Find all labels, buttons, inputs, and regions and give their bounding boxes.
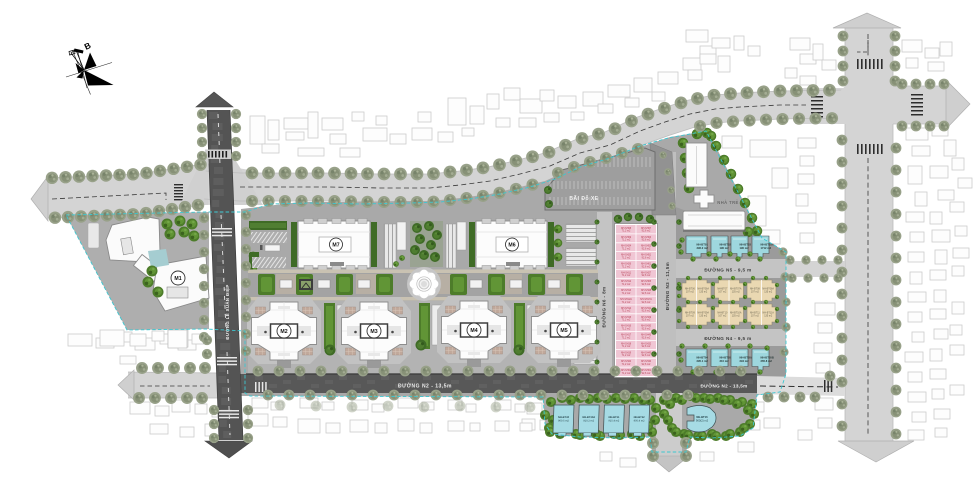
svg-text:M3: M3 [370,329,377,335]
svg-text:71,2 m2: 71,2 m2 [622,274,631,277]
svg-text:915.4 m2: 915.4 m2 [608,418,620,422]
svg-text:71,2 m2: 71,2 m2 [622,310,631,313]
svg-text:71,2 m2: 71,2 m2 [622,283,631,286]
svg-text:71,2 m2: 71,2 m2 [622,319,631,322]
svg-text:92,6 m2: 92,6 m2 [642,230,651,233]
svg-text:71,2 m2: 71,2 m2 [622,239,631,242]
svg-text:M5: M5 [560,328,567,334]
svg-text:ĐƯỜNG N4 - 9,5 m: ĐƯỜNG N4 - 9,5 m [704,334,751,341]
svg-text:71,2 m2: 71,2 m2 [622,301,631,304]
svg-text:BÃI Đỗ XE: BÃI Đỗ XE [569,195,598,202]
svg-text:190 m2: 190 m2 [740,246,750,250]
svg-text:92,6 m2: 92,6 m2 [642,363,651,366]
svg-text:71,2 m2: 71,2 m2 [622,256,631,259]
svg-text:71,2 m2: 71,2 m2 [622,292,631,295]
svg-text:M4: M4 [470,328,477,334]
svg-text:71,2 m2: 71,2 m2 [622,248,631,251]
svg-text:92,6 m2: 92,6 m2 [642,319,651,322]
svg-text:NH-BT31: NH-BT31 [608,415,620,419]
svg-text:92,6 m2: 92,6 m2 [642,301,651,304]
svg-text:71,2 m2: 71,2 m2 [622,345,631,348]
svg-text:1712 m2: 1712 m2 [761,246,772,250]
svg-text:92,6 m2: 92,6 m2 [642,310,651,313]
svg-text:71,2 m2: 71,2 m2 [622,230,631,233]
svg-text:71,2 m2: 71,2 m2 [622,265,631,268]
svg-text:71,2 m2: 71,2 m2 [622,363,631,366]
svg-text:NH-BT32: NH-BT32 [634,415,646,419]
svg-text:ĐƯỜNG N3 - 11,5m: ĐƯỜNG N3 - 11,5m [663,262,670,310]
svg-text:135 m2: 135 m2 [732,291,741,294]
svg-text:71,2 m2: 71,2 m2 [622,354,631,357]
svg-text:ĐƯỜNG LÊ XUÂN ĐIỆP: ĐƯỜNG LÊ XUÂN ĐIỆP [225,284,230,339]
svg-text:92,6 m2: 92,6 m2 [642,345,651,348]
svg-text:92,6 m2: 92,6 m2 [642,283,651,286]
svg-text:905.4 m2: 905.4 m2 [634,418,646,422]
svg-text:900(2) m2: 900(2) m2 [696,419,709,423]
svg-text:M7: M7 [332,243,339,249]
svg-text:107 m2: 107 m2 [686,291,695,294]
svg-text:NHÀ TRẺ: NHÀ TRẺ [717,200,738,205]
svg-text:294 m2: 294 m2 [740,359,750,363]
svg-text:71,2 m2: 71,2 m2 [622,372,631,375]
svg-text:295.1 m2: 295.1 m2 [697,359,709,363]
svg-text:92,6 m2: 92,6 m2 [642,354,651,357]
svg-text:190 m2: 190 m2 [720,246,730,250]
svg-text:92,6 m2: 92,6 m2 [642,336,651,339]
svg-text:M2: M2 [280,329,287,335]
svg-text:135 m2: 135 m2 [699,291,708,294]
svg-text:910.2 m2: 910.2 m2 [583,418,595,422]
svg-text:135 m2: 135 m2 [764,291,773,294]
svg-text:NH-BT30: NH-BT30 [558,415,570,419]
svg-text:NH-BT16: NH-BT16 [696,415,708,419]
svg-text:92,6 m2: 92,6 m2 [642,265,651,268]
svg-text:92,6 m2: 92,6 m2 [642,274,651,277]
svg-text:M6: M6 [508,243,515,249]
svg-text:310 m2: 310 m2 [720,359,730,363]
svg-text:71,2 m2: 71,2 m2 [622,327,631,330]
svg-text:M1: M1 [174,276,181,282]
svg-text:107 m2: 107 m2 [718,315,727,318]
svg-text:107 m2: 107 m2 [686,315,695,318]
svg-text:ĐƯỜNG N2 - 13,5m: ĐƯỜNG N2 - 13,5m [701,382,748,389]
svg-text:92,6 m2: 92,6 m2 [642,292,651,295]
svg-text:92,6 m2: 92,6 m2 [642,327,651,330]
svg-text:135 m2: 135 m2 [699,315,708,318]
svg-text:ĐƯỜNG N6 - 8m: ĐƯỜNG N6 - 8m [600,286,607,327]
svg-text:92,6 m2: 92,6 m2 [642,248,651,251]
svg-text:396.2 m2: 396.2 m2 [697,246,709,250]
svg-text:135 m2: 135 m2 [764,315,773,318]
svg-text:107 m2: 107 m2 [718,291,727,294]
svg-text:ĐƯỜNG N2 - 13,5m: ĐƯỜNG N2 - 13,5m [398,382,452,390]
svg-text:92,6 m2: 92,6 m2 [642,239,651,242]
svg-text:107 m2: 107 m2 [751,315,760,318]
svg-text:135 m2: 135 m2 [732,315,741,318]
svg-text:265.8 m2: 265.8 m2 [761,359,773,363]
svg-text:ĐƯỜNG N5 - 9,5 m: ĐƯỜNG N5 - 9,5 m [704,266,751,273]
svg-text:92,6 m2: 92,6 m2 [642,372,651,375]
svg-text:900.5 m2: 900.5 m2 [558,418,570,422]
svg-text:NH-BT30A: NH-BT30A [582,415,595,419]
svg-text:92,6 m2: 92,6 m2 [642,256,651,259]
svg-text:107 m2: 107 m2 [751,291,760,294]
svg-text:71,2 m2: 71,2 m2 [622,336,631,339]
